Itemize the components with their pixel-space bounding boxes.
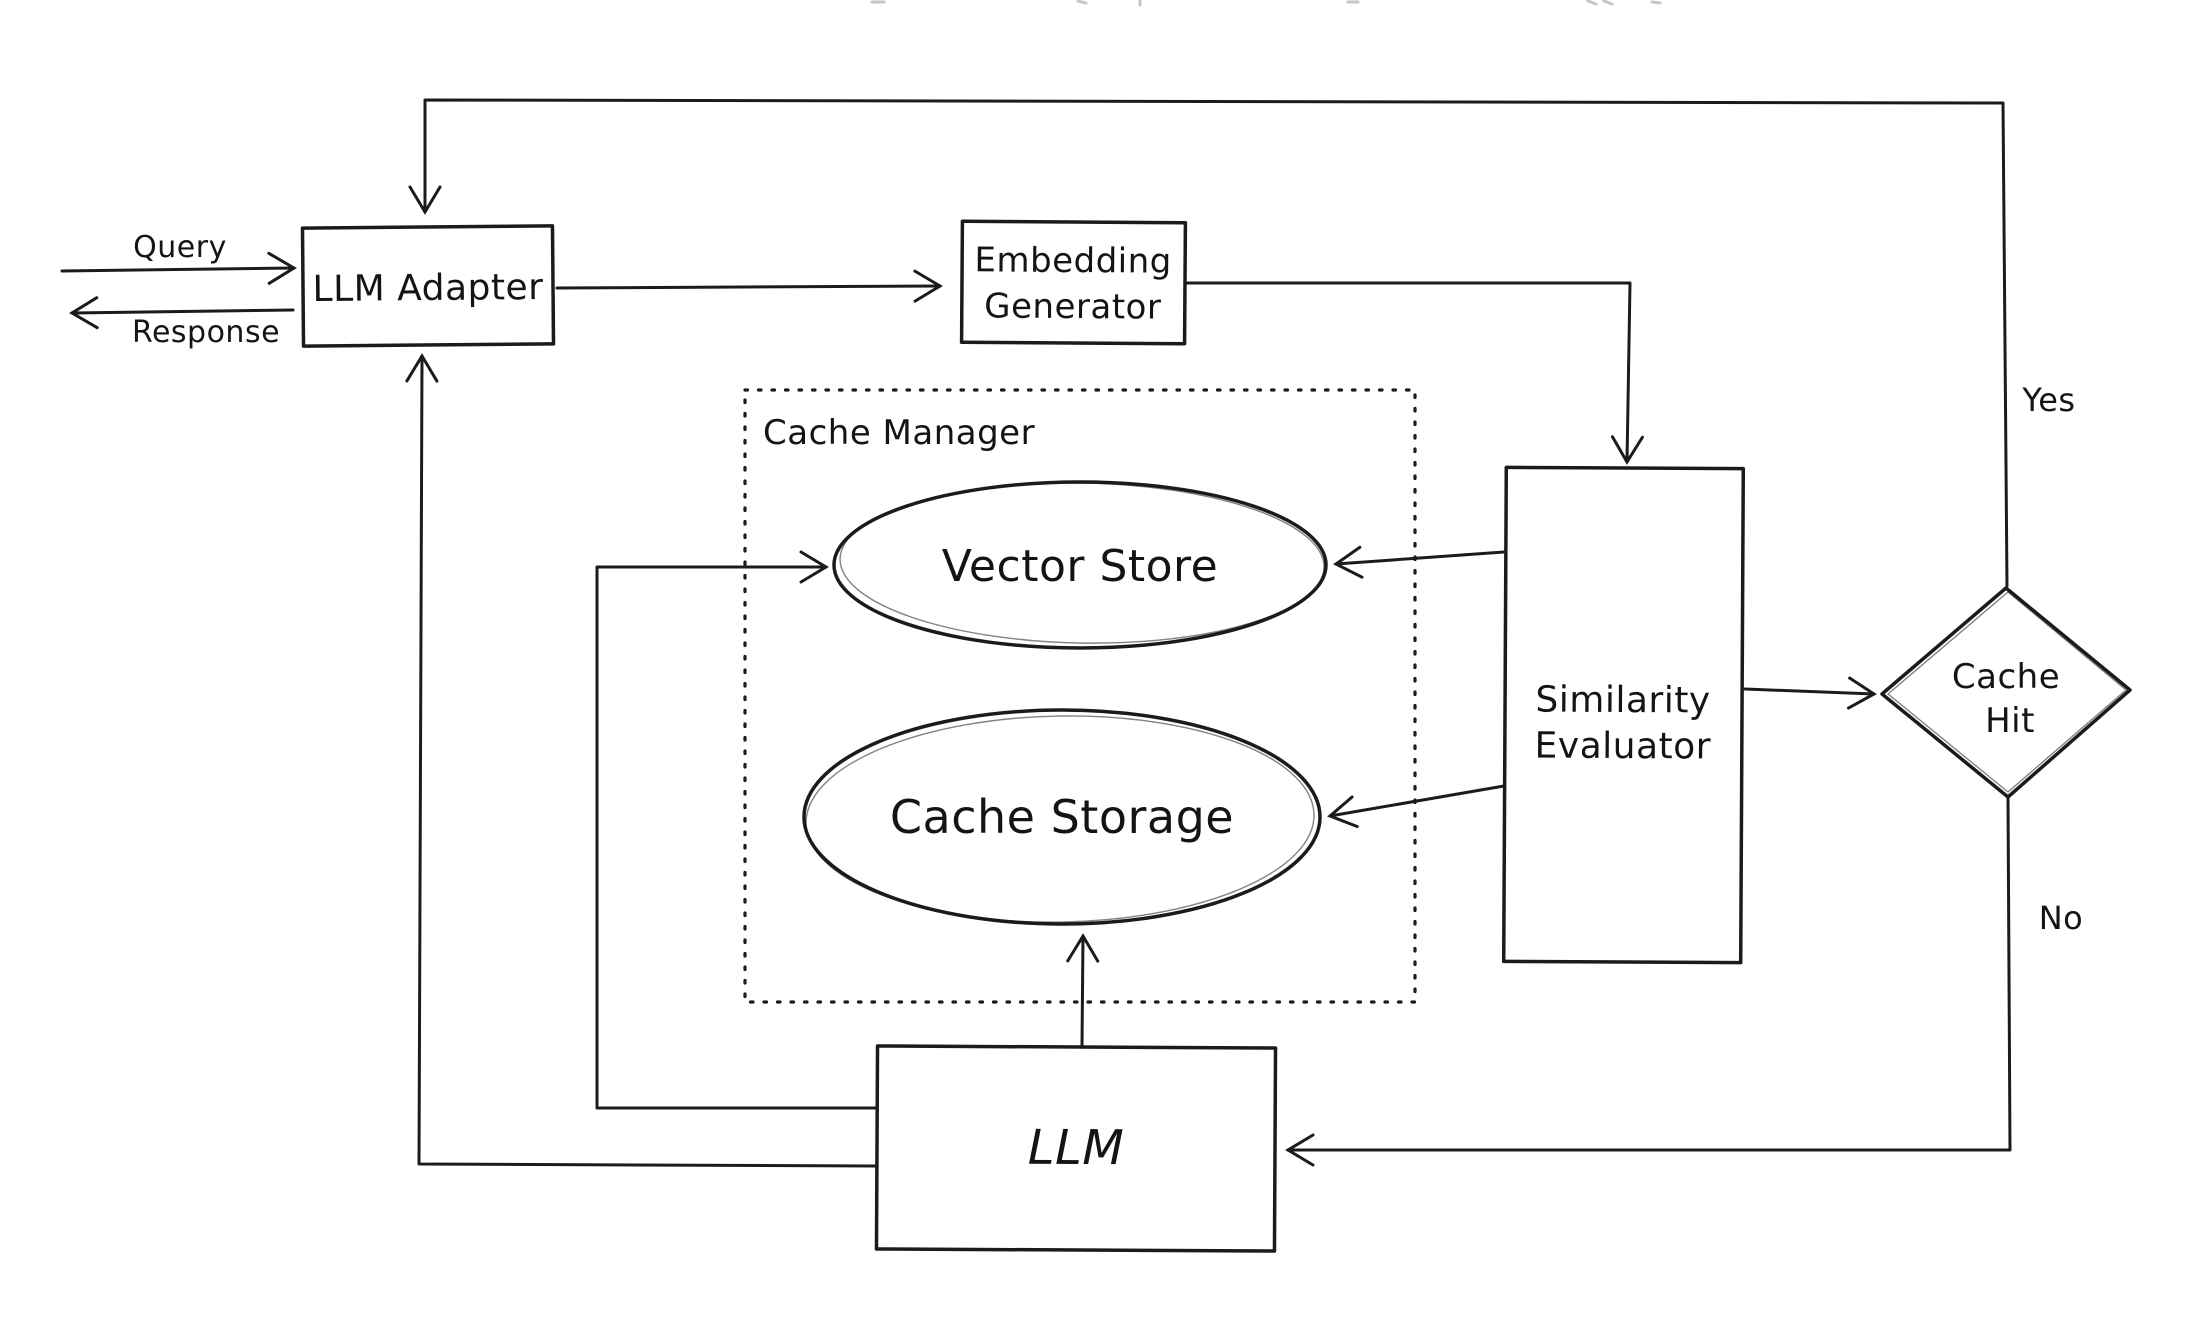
cache-manager-label: Cache Manager <box>763 413 1035 453</box>
cache-storage-node: Cache Storage <box>804 710 1320 926</box>
embedding-generator-label-line1: Embedding <box>974 240 1172 281</box>
cropped-title-remnant <box>872 0 1660 5</box>
cache-storage-label: Cache Storage <box>890 790 1234 844</box>
vector-store-label: Vector Store <box>942 541 1219 592</box>
no-label: No <box>2039 899 2084 937</box>
response-arrow <box>72 310 293 313</box>
evaluator-to-cache-storage-arrow <box>1330 786 1504 816</box>
evaluator-to-vector-store-arrow <box>1336 552 1504 564</box>
yes-label: Yes <box>2021 381 2075 419</box>
similarity-evaluator-label-line2: Evaluator <box>1535 726 1712 768</box>
diagram-canvas: Cache Manager LLM Adapter Embedding Gene… <box>0 0 2212 1336</box>
similarity-evaluator-node: Similarity Evaluator <box>1504 467 1744 962</box>
llm-to-adapter-arrow <box>419 356 875 1166</box>
query-label: Query <box>133 230 227 265</box>
cache-hit-decision-node: Cache Hit <box>1882 588 2130 797</box>
evaluator-to-cache-hit-arrow <box>1745 689 1874 694</box>
cache-hit-label-line2: Hit <box>1985 701 2035 741</box>
query-arrow <box>62 268 294 271</box>
adapter-to-embedding-arrow <box>557 286 940 288</box>
llm-adapter-node: LLM Adapter <box>302 226 553 346</box>
llm-adapter-label: LLM Adapter <box>312 267 543 310</box>
cache-hit-label-line1: Cache <box>1952 657 2060 697</box>
similarity-evaluator-label-line1: Similarity <box>1535 680 1710 722</box>
vector-store-node: Vector Store <box>834 479 1326 648</box>
llm-node: LLM <box>876 1046 1275 1251</box>
llm-to-cache-storage-arrow <box>1082 936 1083 1045</box>
response-label: Response <box>132 315 280 350</box>
embedding-generator-node: Embedding Generator <box>962 221 1186 344</box>
embedding-generator-label-line2: Generator <box>984 286 1161 327</box>
llm-label: LLM <box>1028 1120 1125 1177</box>
embedding-to-evaluator-arrow <box>1187 283 1630 462</box>
